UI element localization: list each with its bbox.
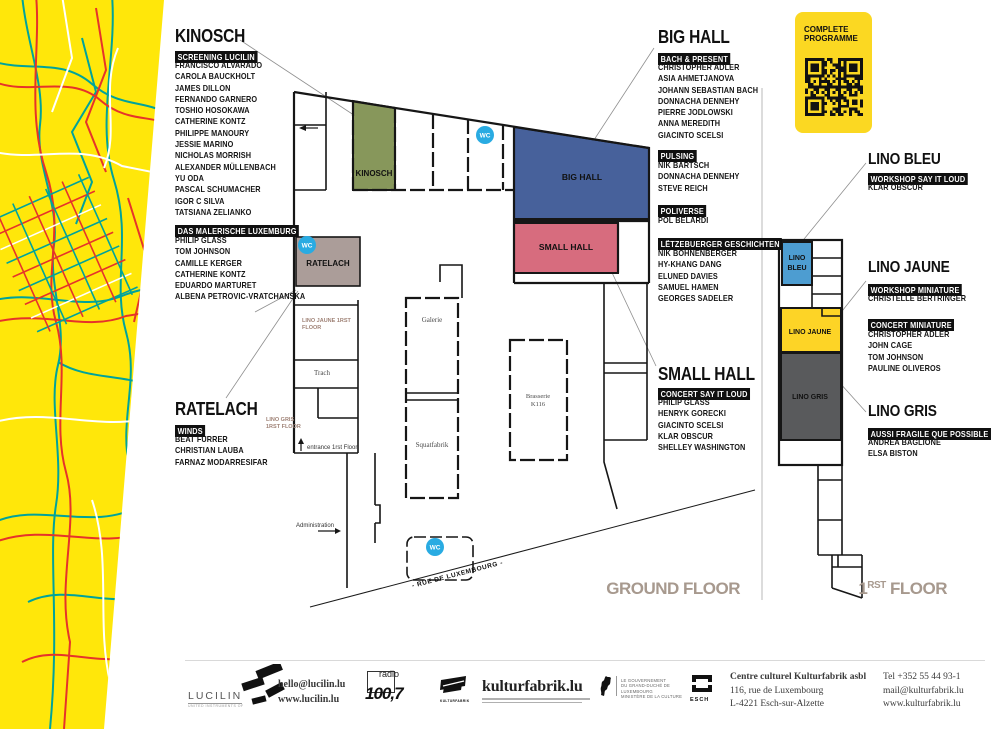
kulturfabrik-subtext-bar	[482, 698, 590, 699]
contact-line: www.kulturfabrik.lu	[883, 698, 964, 712]
radio-1007-logo: radio 100,7	[365, 667, 413, 713]
address-line: L-4221 Esch-sur-Alzette	[730, 698, 866, 712]
artist-name: ELUNED DAVIES	[658, 271, 737, 282]
label-big-hall: BIG HALL	[562, 172, 602, 182]
kulturfabrik-site-wordmark: kulturfabrik.lu	[482, 678, 602, 696]
lucilin-website-link[interactable]: www.lucilin.lu	[278, 694, 339, 705]
artist-name: CAROLA BAUCKHOLT	[175, 71, 276, 82]
artist-name: CHRISTELLE BERTRINGER	[868, 293, 966, 304]
festival-floorplan-poster: { "palette": { "map_yellow": "#ffe70a", …	[0, 0, 1000, 729]
artist-name: DONNACHA DENNEHY	[658, 171, 740, 182]
artist-name: DONNACHA DENNEHY	[658, 96, 758, 107]
artist-name: POL BELARDI	[658, 215, 708, 226]
gov-luxembourg-logo: LE GOUVERNEMENTDU GRAND-DUCHÉ DE LUXEMBO…	[598, 675, 683, 701]
artist-list-ratelach: BEAT FURRERCHRISTIAN LAUBAFARNAZ MODARRE…	[175, 434, 268, 468]
footer-divider	[185, 660, 985, 661]
artist-name: ASIA AHMETJANOVA	[658, 73, 758, 84]
contact-line: Tel +352 55 44 93-1	[883, 671, 964, 685]
room-galerie-squatfabrik	[406, 298, 458, 498]
artist-list-lino-jaune-concert: CHRISTOPHER ADLERJOHN CAGETOM JOHNSONPAU…	[868, 329, 949, 374]
artist-name: TOM JOHNSON	[868, 352, 949, 363]
artist-name: ALBENA PETROVIC-VRATCHANSKA	[175, 291, 305, 302]
esch-wordmark: ESCH	[690, 697, 716, 703]
lucilin-wordmark: LUCILIN	[188, 690, 242, 704]
artist-name: FERNANDO GARNERO	[175, 94, 276, 105]
artist-name: FARNAZ MODARRESIFAR	[175, 457, 268, 468]
artist-name: PAULINE OLIVEROS	[868, 363, 949, 374]
artist-name: PHILIP GLASS	[658, 397, 745, 408]
artist-name: TOSHIO HOSOKAWA	[175, 105, 276, 116]
ground-center-walls	[406, 265, 462, 400]
wc-marker-top: WC	[476, 126, 494, 144]
lucilin-logo: LUCILIN UNITED INSTRUMENTS OF	[188, 664, 290, 716]
esch-brackets-icon	[690, 674, 714, 692]
artist-name: HENRYK GORECKI	[658, 408, 745, 419]
lucilin-email-link[interactable]: hello@lucilin.lu	[278, 679, 345, 690]
artist-name: PHILIP GLASS	[175, 235, 305, 246]
programme-card-line2: PROGRAMME	[804, 34, 858, 43]
artist-name: CAMILLE KERGER	[175, 258, 305, 269]
section-title-lino-jaune: LINO JAUNE	[868, 260, 950, 276]
artist-name: CHRISTOPHER ADLER	[658, 62, 758, 73]
artist-name: JOHANN SEBASTIAN BACH	[658, 85, 758, 96]
gov-text-line: MINISTÈRE DE LA CULTURE	[621, 694, 683, 699]
artist-list-lino-gris: ANDREA BAGLIONEELSA BISTON	[868, 437, 941, 460]
section-title-kinosch: KINOSCH	[175, 27, 245, 45]
artist-name: JESSIE MARINO	[175, 139, 276, 150]
radio-word: radio	[379, 669, 399, 679]
label-squatfabrik: Squatfabrik	[416, 441, 449, 449]
artist-name: STEVE REICH	[658, 183, 740, 194]
artist-list-small-hall: PHILIP GLASSHENRYK GORECKIGIACINTO SCELS…	[658, 397, 745, 453]
artist-name: FRANCISCO ALVARADO	[175, 60, 276, 71]
artist-name: SAMUEL HAMEN	[658, 282, 737, 293]
section-title-lino-gris: LINO GRIS	[868, 404, 937, 420]
address-block: Centre culturel Kulturfabrik asbl116, ru…	[730, 671, 866, 712]
complete-programme-card[interactable]: COMPLETE PROGRAMME	[795, 12, 872, 133]
artist-name: NIK BÄRTSCH	[658, 160, 740, 171]
section-title-big-hall: BIG HALL	[658, 28, 730, 46]
artist-name: TOM JOHNSON	[175, 246, 305, 257]
artist-list-poliverse: POL BELARDI	[658, 215, 708, 226]
artist-name: CATHERINE KONTZ	[175, 116, 276, 127]
artist-list-lino-jaune-workshop: CHRISTELLE BERTRINGER	[868, 293, 966, 304]
artist-list-das-malerische: PHILIP GLASSTOM JOHNSONCAMILLE KERGERCAT…	[175, 235, 305, 303]
address-line: 116, rue de Luxembourg	[730, 685, 866, 699]
wc-marker-south: WC	[426, 538, 444, 556]
artist-name: NICHOLAS MORRISH	[175, 150, 276, 161]
artist-name: ALEXANDER MÜLLENBACH	[175, 162, 276, 173]
artist-name: KLAR OBSCUR	[868, 182, 923, 193]
contact-line: mail@kulturfabrik.lu	[883, 685, 964, 699]
kulturfabrik-flag-logo: KULTURFABRIK	[440, 676, 470, 704]
artist-list-kinosch: FRANCISCO ALVARADOCAROLA BAUCKHOLTJAMES …	[175, 60, 276, 218]
lucilin-tagline: UNITED INSTRUMENTS OF	[188, 704, 244, 708]
artist-name: HY-KHANG DANG	[658, 259, 737, 270]
artist-name: CHRISTOPHER ADLER	[868, 329, 949, 340]
column-left: KINOSCH SCREENING LUCILIN FRANCISCO ALVA…	[175, 0, 373, 729]
label-brasserie-k116: K116	[531, 401, 546, 408]
kulturfabrik-subtext-bar	[482, 702, 582, 703]
contact-block[interactable]: Tel +352 55 44 93-1mail@kulturfabrik.luw…	[883, 671, 964, 712]
label-street: - RUE DE LUXEMBOURG -	[411, 559, 504, 589]
artist-list-big-hall: CHRISTOPHER ADLERASIA AHMETJANOVAJOHANN …	[658, 62, 758, 141]
luxembourg-lion-icon	[598, 675, 612, 697]
artist-name: EDUARDO MARTURET	[175, 280, 305, 291]
ground-rightcol-walls	[604, 283, 647, 509]
address-line: Centre culturel Kulturfabrik asbl	[730, 671, 866, 685]
artist-list-pulsing: NIK BÄRTSCHDONNACHA DENNEHYSTEVE REICH	[658, 160, 740, 194]
section-title-ratelach: RATELACH	[175, 400, 258, 418]
svg-text:WC: WC	[480, 133, 491, 140]
label-brasserie: Brasserie	[526, 393, 550, 400]
artist-name: ELSA BISTON	[868, 448, 941, 459]
artist-name: JAMES DILLON	[175, 83, 276, 94]
gov-text-lines: LE GOUVERNEMENTDU GRAND-DUCHÉ DE LUXEMBO…	[621, 678, 683, 700]
kulturfabrik-site-logo: kulturfabrik.lu	[482, 678, 602, 703]
artist-name: GEORGES SADELER	[658, 293, 737, 304]
artist-name: CATHERINE KONTZ	[175, 269, 305, 280]
artist-name: GIACINTO SCELSI	[658, 130, 758, 141]
artist-list-letzebuerger: NIK BOHNENBERGERHY-KHANG DANGELUNED DAVI…	[658, 248, 737, 304]
artist-list-lino-bleu: KLAR OBSCUR	[868, 182, 923, 193]
qr-code-icon	[805, 58, 863, 116]
artist-name: KLAR OBSCUR	[658, 431, 745, 442]
programme-card-line1: COMPLETE	[804, 25, 858, 34]
label-galerie: Galerie	[422, 316, 443, 324]
section-title-small-hall: SMALL HALL	[658, 365, 755, 383]
artist-name: IGOR C SILVA	[175, 196, 276, 207]
flag-icon	[440, 676, 468, 694]
room-brasserie	[510, 340, 567, 460]
radio-number: 100,7	[365, 684, 403, 704]
artist-name: CHRISTIAN LAUBA	[175, 445, 268, 456]
gov-logo-divider	[616, 676, 617, 696]
artist-name: ANNA MEREDITH	[658, 118, 758, 129]
svg-text:WC: WC	[430, 545, 441, 552]
label-small-hall: SMALL HALL	[539, 242, 593, 252]
artist-name: BEAT FURRER	[175, 434, 268, 445]
artist-name: JOHN CAGE	[868, 340, 949, 351]
artist-name: ANDREA BAGLIONE	[868, 437, 941, 448]
section-title-lino-bleu: LINO BLEU	[868, 152, 941, 168]
artist-name: NIK BOHNENBERGER	[658, 248, 737, 259]
artist-name: PHILIPPE MANOURY	[175, 128, 276, 139]
artist-name: YU ODA	[175, 173, 276, 184]
gov-text-line: DU GRAND-DUCHÉ DE LUXEMBOURG	[621, 683, 683, 694]
column-right: LINO BLEU WORKSHOP SAY IT LOUD KLAR OBSC…	[868, 0, 1000, 729]
esch-logo: ESCH	[690, 674, 716, 702]
kulturfabrik-small-wordmark: KULTURFABRIK	[440, 699, 470, 703]
artist-name: SHELLEY WASHINGTON	[658, 442, 745, 453]
artist-name: PASCAL SCHUMACHER	[175, 184, 276, 195]
artist-name: GIACINTO SCELSI	[658, 420, 745, 431]
artist-name: PIERRE JODLOWSKI	[658, 107, 758, 118]
artist-name: TATSIANA ZELIANKO	[175, 207, 276, 218]
